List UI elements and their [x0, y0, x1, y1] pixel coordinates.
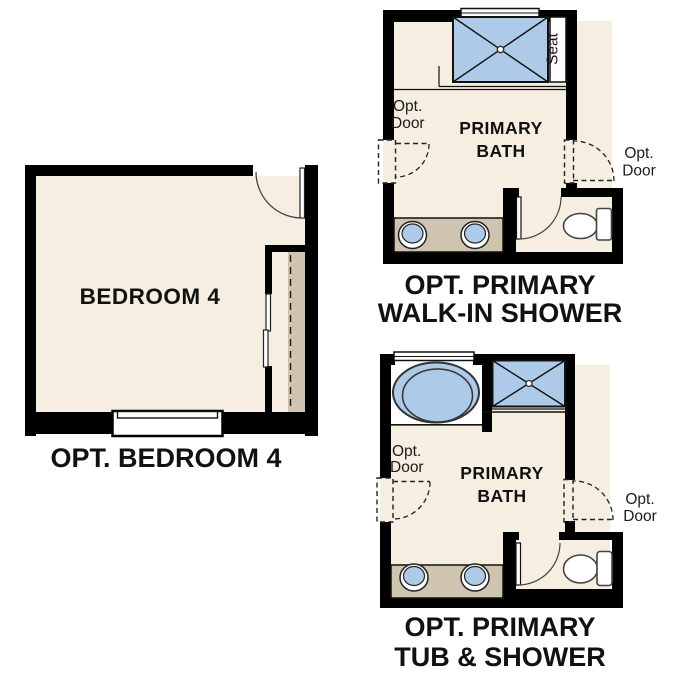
shower-drain — [526, 381, 532, 387]
bath-room-label-2: BATH — [477, 486, 526, 506]
toilet-room-door-leaf — [516, 543, 521, 585]
right-door-opening — [566, 140, 577, 183]
bath-room-label-1: PRIMARY — [459, 118, 543, 138]
toilet-room-door-leaf — [517, 197, 522, 239]
tub-shower-plan: Opt. Door Opt. Door PRIMARY BATH OPT. PR… — [377, 352, 657, 672]
left-door-opening — [383, 140, 394, 183]
seat-label: Seat — [545, 32, 562, 65]
sink-left — [399, 222, 427, 249]
shower — [482, 361, 565, 413]
bedroom-plan: BEDROOM 4 OPT. BEDROOM 4 — [25, 165, 318, 473]
walk-in-shower-caption-2: WALK-IN SHOWER — [378, 298, 622, 328]
sink-right — [461, 222, 489, 249]
tub-shower-caption-1: OPT. PRIMARY — [404, 612, 595, 642]
left-opt-door-label-2: Door — [391, 115, 425, 132]
walk-in-shower-caption-1: OPT. PRIMARY — [404, 270, 595, 300]
bedroom-caption: OPT. BEDROOM 4 — [50, 443, 281, 473]
right-opt-door-label-2: Door — [622, 163, 656, 180]
bath-room-label-1: PRIMARY — [460, 463, 544, 483]
floor-plan-canvas: BEDROOM 4 OPT. BEDROOM 4 Se — [0, 0, 687, 687]
toilet — [564, 552, 613, 586]
bedroom-window-glass — [118, 412, 218, 419]
right-opt-door-label-1: Opt. — [624, 145, 653, 162]
bathtub — [391, 363, 482, 426]
bedroom-room-label: BEDROOM 4 — [80, 284, 221, 309]
left-opt-door-label-1: Opt. — [392, 443, 421, 460]
sink-right — [461, 564, 489, 591]
floorplan-page: BEDROOM 4 OPT. BEDROOM 4 Se — [0, 0, 687, 687]
walk-in-shower — [453, 17, 548, 82]
left-door-opening — [380, 478, 391, 522]
shower-drain — [497, 46, 503, 52]
walk-in-shower-plan: Seat Opt. Door Opt. Door — [378, 9, 656, 329]
bedroom-door-leaf — [300, 168, 305, 218]
left-opt-door-label-1: Opt. — [393, 98, 422, 115]
tub-shower-caption-2: TUB & SHOWER — [394, 642, 606, 672]
closet-sliding-door-panel-1 — [266, 294, 271, 331]
right-opt-door-label-1: Opt. — [625, 491, 654, 508]
right-opt-door-label-2: Door — [623, 508, 657, 525]
sink-left — [400, 564, 428, 591]
bath-room-label-2: BATH — [476, 141, 525, 161]
closet-sliding-door-panel-2 — [264, 330, 269, 367]
left-opt-door-label-2: Door — [390, 459, 424, 476]
